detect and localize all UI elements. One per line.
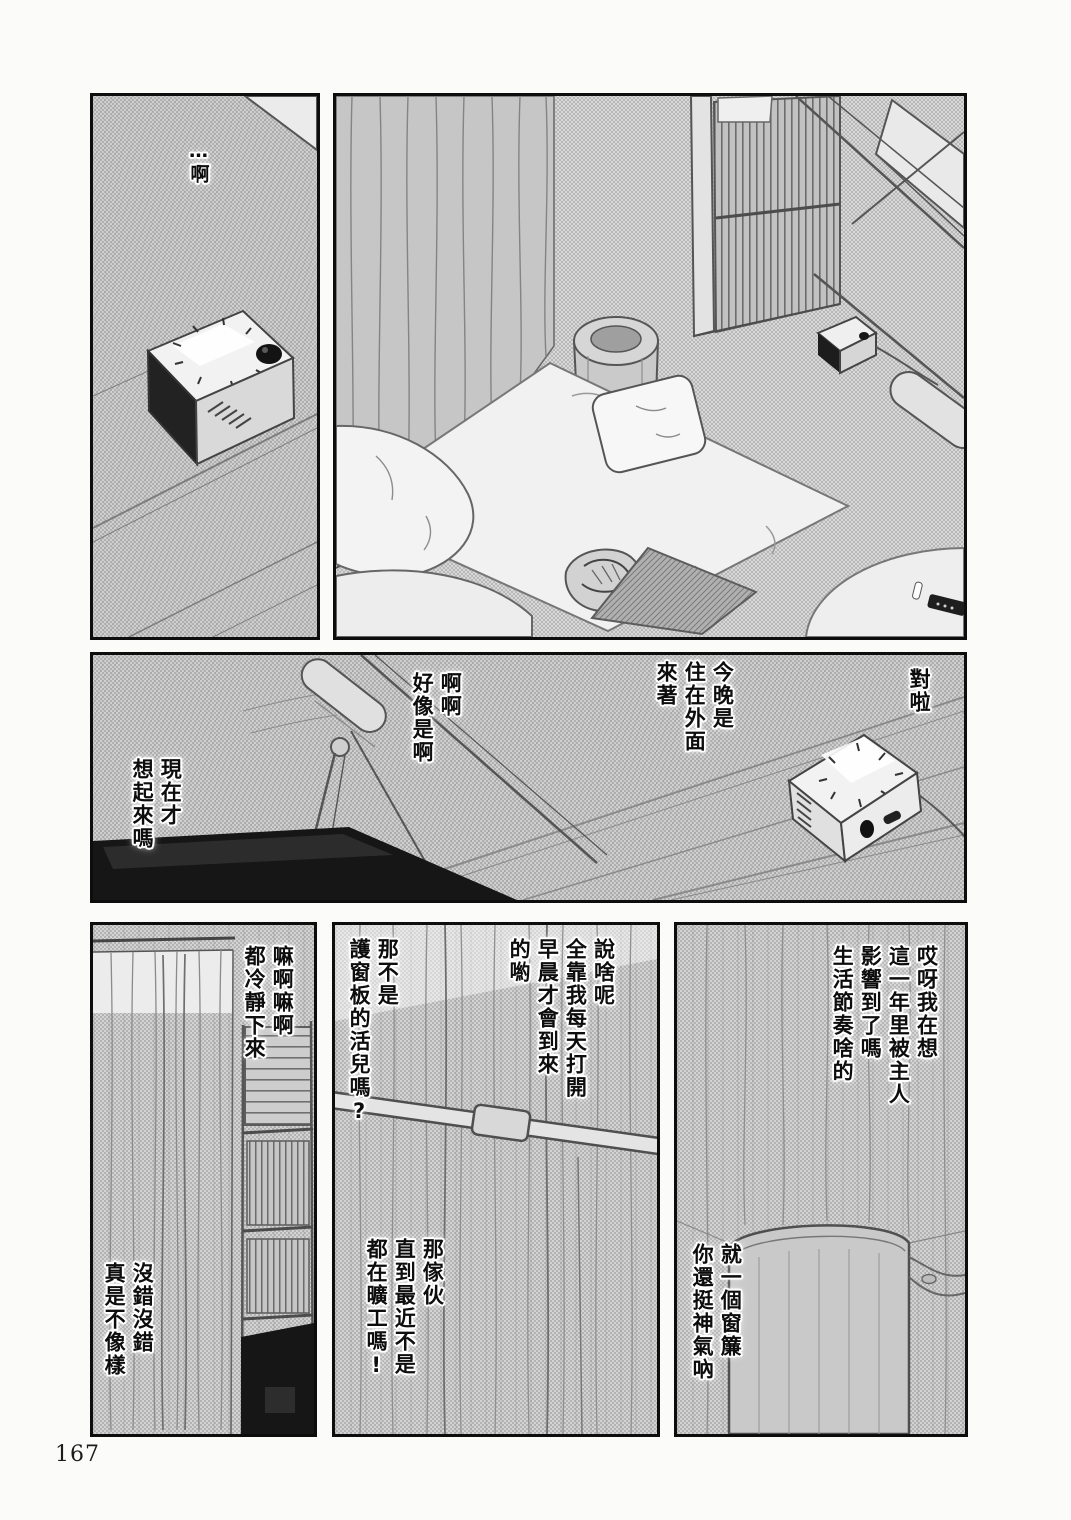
speech-slacker: 那傢伙 直到最近不是 都在曠工嗎! bbox=[362, 1238, 446, 1379]
alarm-clock-drawing bbox=[789, 735, 964, 893]
low-table-drawing bbox=[806, 548, 964, 637]
manga-page: …啊 bbox=[0, 0, 1071, 1520]
tv-drawing bbox=[241, 1323, 314, 1434]
rolled-futon-drawing bbox=[729, 1225, 965, 1434]
rolled-cushion-drawing bbox=[883, 365, 964, 455]
panel-bottom-middle: 說啥呢 全靠我每天打開 早晨才會到來 的喲 那不是 護窗板的活兒嗎? 那傢伙 直… bbox=[332, 922, 660, 1437]
panel-top-left: …啊 bbox=[90, 93, 320, 640]
speech-thinking: 哎呀我在想 這一年里被主人 影響到了嗎 生活節奏啥的 bbox=[828, 945, 941, 1106]
curtain-rod bbox=[93, 938, 235, 941]
speech-retort: 說啥呢 全靠我每天打開 早晨才會到來 的喲 bbox=[505, 938, 618, 1099]
panel-bottom-right: 哎呀我在想 這一年里被主人 影響到了嗎 生活節奏啥的 就一個窗簾 你還挺神氣吶 bbox=[674, 922, 968, 1437]
panel-middle: 對啦 今晚是 住在外面 來著 啊啊 好像是啊 現在才 想起來嗎 bbox=[90, 652, 967, 903]
speech-agree: 啊啊 好像是啊 bbox=[408, 672, 464, 764]
rail-connector bbox=[471, 1104, 531, 1142]
bookshelf-drawing bbox=[691, 96, 840, 336]
pole-drawing bbox=[361, 655, 607, 863]
panel-bottom-left: 嘛啊嘛啊 都冷靜下來 沒錯沒錯 真是不像樣 bbox=[90, 922, 317, 1437]
speech-curtain-taunt: 就一個窗簾 你還挺神氣吶 bbox=[688, 1243, 744, 1381]
books-row bbox=[247, 1141, 309, 1225]
speech-shutter-job: 那不是 護窗板的活兒嗎? bbox=[345, 938, 401, 1125]
panel-middle-art bbox=[93, 655, 964, 900]
clock-knob bbox=[256, 344, 282, 364]
speech-now-remember: 現在才 想起來嗎 bbox=[128, 758, 184, 850]
futon-edge-drawing bbox=[245, 96, 317, 150]
panel-top-right-art bbox=[336, 96, 964, 637]
page-number: 167 bbox=[55, 1442, 100, 1467]
speech-shameful: 沒錯沒錯 真是不像樣 bbox=[100, 1262, 156, 1377]
alarm-clock-drawing bbox=[148, 311, 294, 464]
speech-duila: 對啦 bbox=[905, 668, 933, 714]
panel-top-right bbox=[333, 93, 967, 640]
futon-cord bbox=[909, 1257, 965, 1296]
speech-calm-down: 嘛啊嘛啊 都冷靜下來 bbox=[240, 945, 296, 1060]
speech-ellipsis-ah: …啊 bbox=[185, 140, 210, 185]
clock-cord bbox=[919, 795, 964, 893]
clock-knob bbox=[860, 820, 874, 838]
books-row bbox=[247, 1239, 309, 1313]
speech-tonight: 今晚是 住在外面 來著 bbox=[652, 661, 736, 753]
